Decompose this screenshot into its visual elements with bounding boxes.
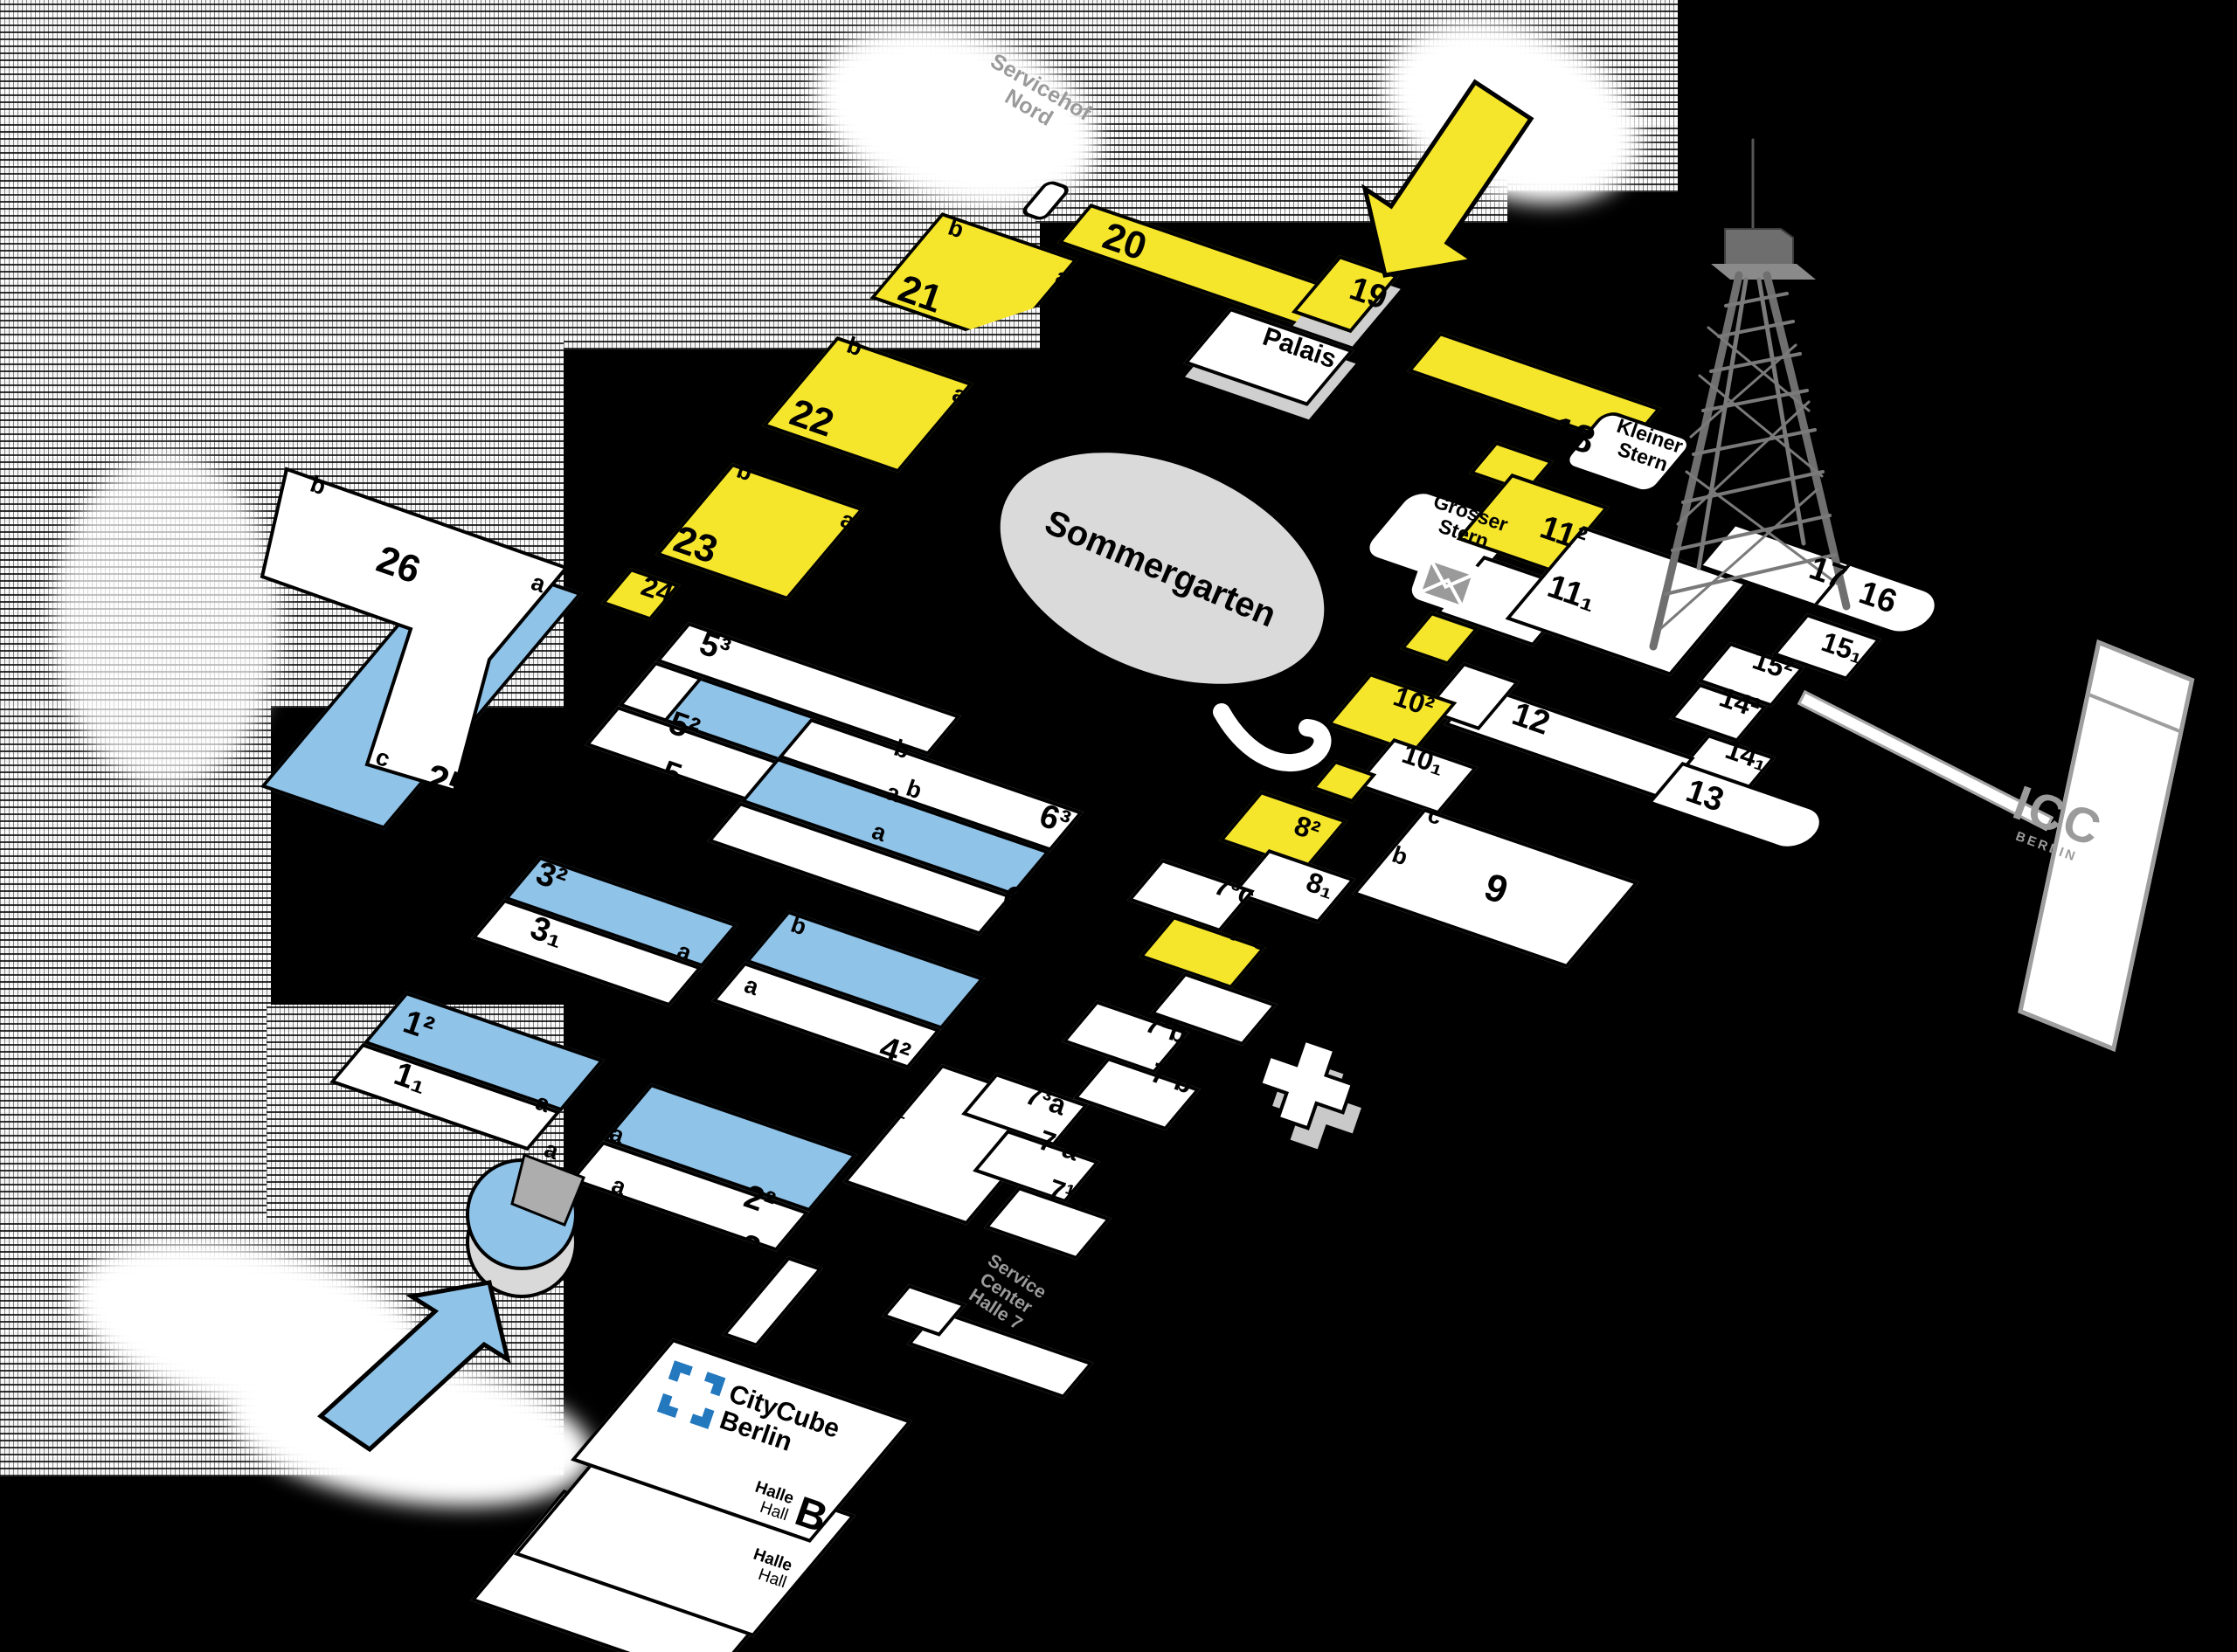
envelope-icon xyxy=(1409,549,1486,617)
hall-26[interactable] xyxy=(262,469,566,791)
entrance-arrow-blue-icon xyxy=(321,1282,508,1449)
hall-plan-map: 20 21 22 23 24 25 26 19 Palais 18 9 12 1… xyxy=(0,0,2237,1652)
entrance-arrow-yellow-icon xyxy=(1365,82,1531,275)
